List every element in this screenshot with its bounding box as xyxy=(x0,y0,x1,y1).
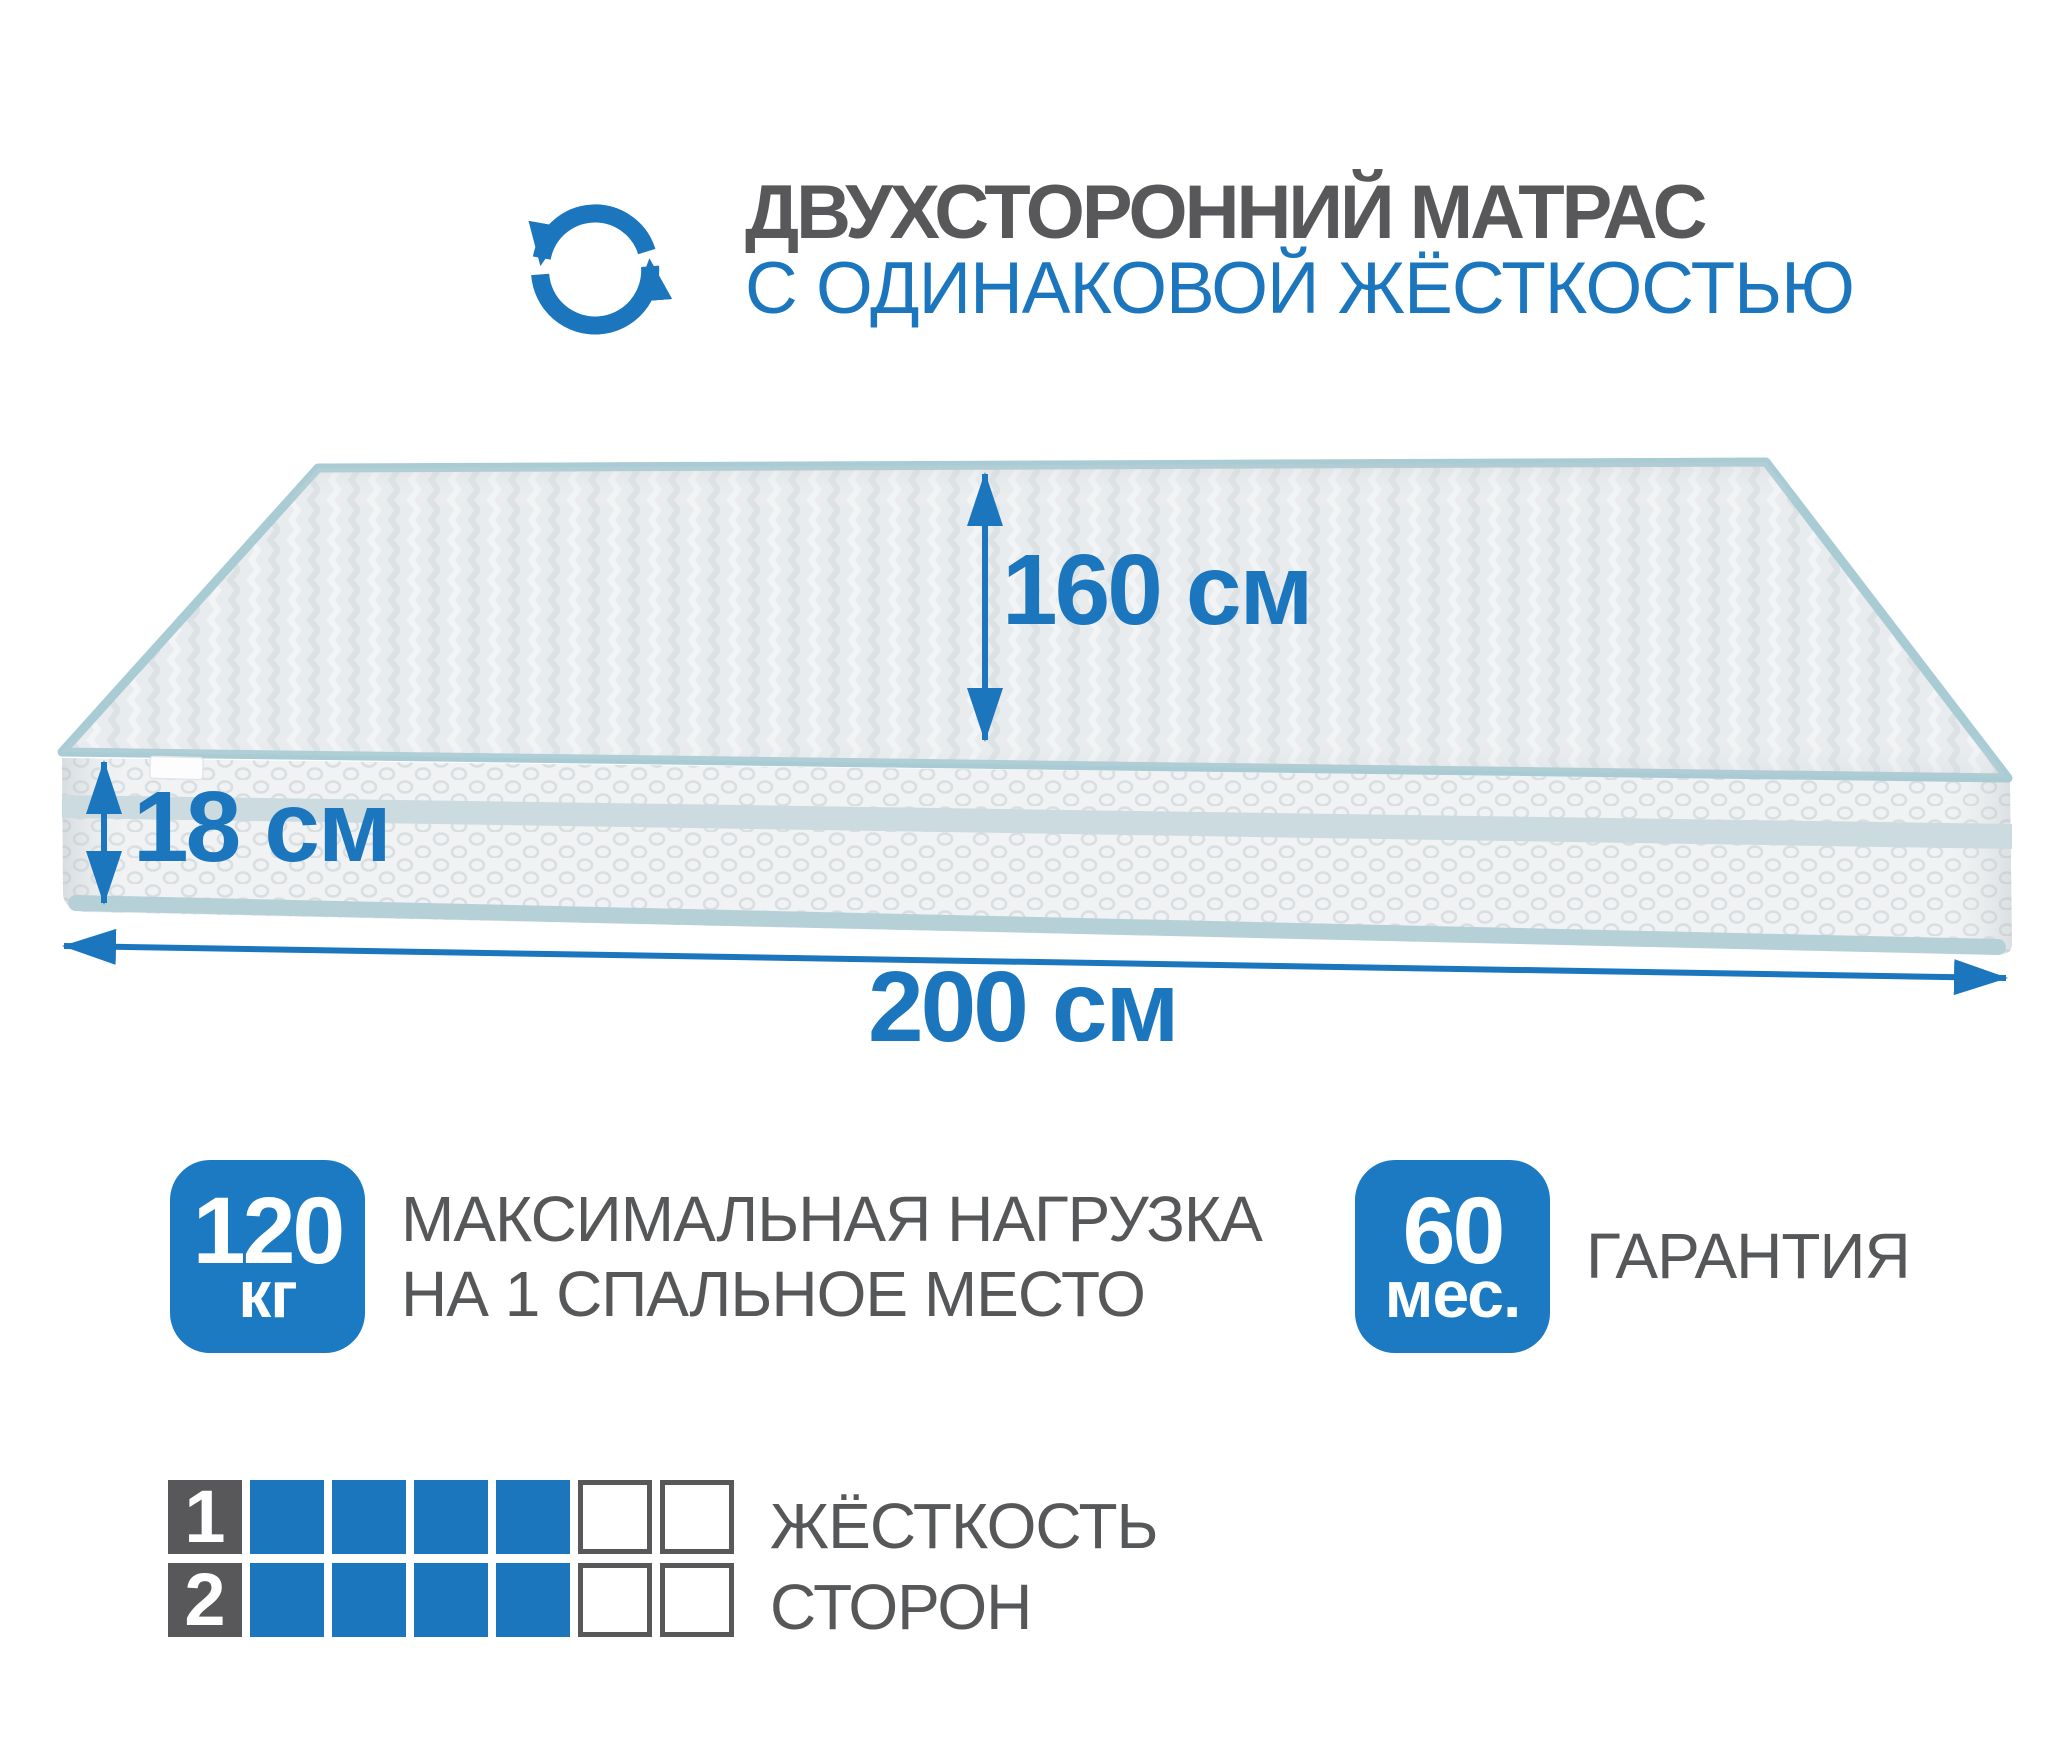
height-value: 18 xyxy=(133,771,238,883)
height-unit: см xyxy=(264,771,390,883)
length-value: 200 xyxy=(868,951,1026,1063)
max-load-label: МАКСИМАЛЬНАЯ НАГРУЗКА НА 1 СПАЛЬНОЕ МЕСТ… xyxy=(401,1182,1262,1332)
firmness-filled-square xyxy=(250,1480,324,1554)
max-load-unit: кг xyxy=(238,1268,297,1320)
firmness-empty-square xyxy=(660,1563,734,1637)
height-dimension-label: 18см xyxy=(133,777,390,877)
width-value: 160 xyxy=(1002,534,1160,646)
length-dimension-label: 200см xyxy=(868,957,1177,1057)
side-number-box: 2 xyxy=(168,1563,242,1637)
mattress-infographic: { "colors":{ "accent":"#1b76bd", "badge"… xyxy=(0,0,2048,1757)
warranty-label: ГАРАНТИЯ xyxy=(1586,1219,1910,1294)
firmness-empty-square xyxy=(660,1480,734,1554)
firmness-label-line2: СТОРОН xyxy=(770,1567,1158,1648)
firmness-label-line1: ЖЁСТКОСТЬ xyxy=(770,1486,1158,1567)
max-load-label-line1: МАКСИМАЛЬНАЯ НАГРУЗКА xyxy=(401,1182,1262,1257)
width-unit: см xyxy=(1186,534,1312,646)
rotate-arc-top xyxy=(542,213,647,258)
firmness-scale: 1 2 xyxy=(168,1480,734,1637)
firmness-empty-square xyxy=(578,1563,652,1637)
page-subtitle: С ОДИНАКОВОЙ ЖЁСТКОСТЬЮ xyxy=(745,252,1854,325)
warranty-group: 60 мес. ГАРАНТИЯ xyxy=(1355,1160,1910,1353)
firmness-filled-square xyxy=(496,1480,570,1554)
firmness-scale-label: ЖЁСТКОСТЬ СТОРОН xyxy=(770,1486,1158,1648)
mattress-bottom-piping xyxy=(76,903,1998,947)
firmness-filled-square xyxy=(414,1563,488,1637)
max-load-label-line2: НА 1 СПАЛЬНОЕ МЕСТО xyxy=(401,1257,1262,1332)
firmness-filled-square xyxy=(332,1563,406,1637)
firmness-row-side2: 2 xyxy=(168,1563,734,1637)
rotate-arrows-icon xyxy=(507,181,675,345)
max-load-badge: 120 кг xyxy=(170,1160,365,1353)
warranty-badge: 60 мес. xyxy=(1355,1160,1550,1353)
firmness-row-side1: 1 xyxy=(168,1480,734,1554)
max-load-group: 120 кг МАКСИМАЛЬНАЯ НАГРУЗКА НА 1 СПАЛЬН… xyxy=(170,1160,1262,1353)
firmness-filled-square xyxy=(496,1563,570,1637)
rotate-arc-bottom xyxy=(540,266,650,325)
warranty-unit: мес. xyxy=(1385,1268,1521,1320)
width-dimension-label: 160см xyxy=(1002,540,1311,640)
firmness-squares xyxy=(250,1480,734,1554)
page-title: ДВУХСТОРОННИЙ МАТРАС xyxy=(745,175,1705,251)
firmness-filled-square xyxy=(250,1563,324,1637)
side-number-box: 1 xyxy=(168,1480,242,1554)
length-unit: см xyxy=(1052,951,1178,1063)
firmness-filled-square xyxy=(414,1480,488,1554)
firmness-filled-square xyxy=(332,1480,406,1554)
firmness-empty-square xyxy=(578,1480,652,1554)
firmness-squares xyxy=(250,1563,734,1637)
